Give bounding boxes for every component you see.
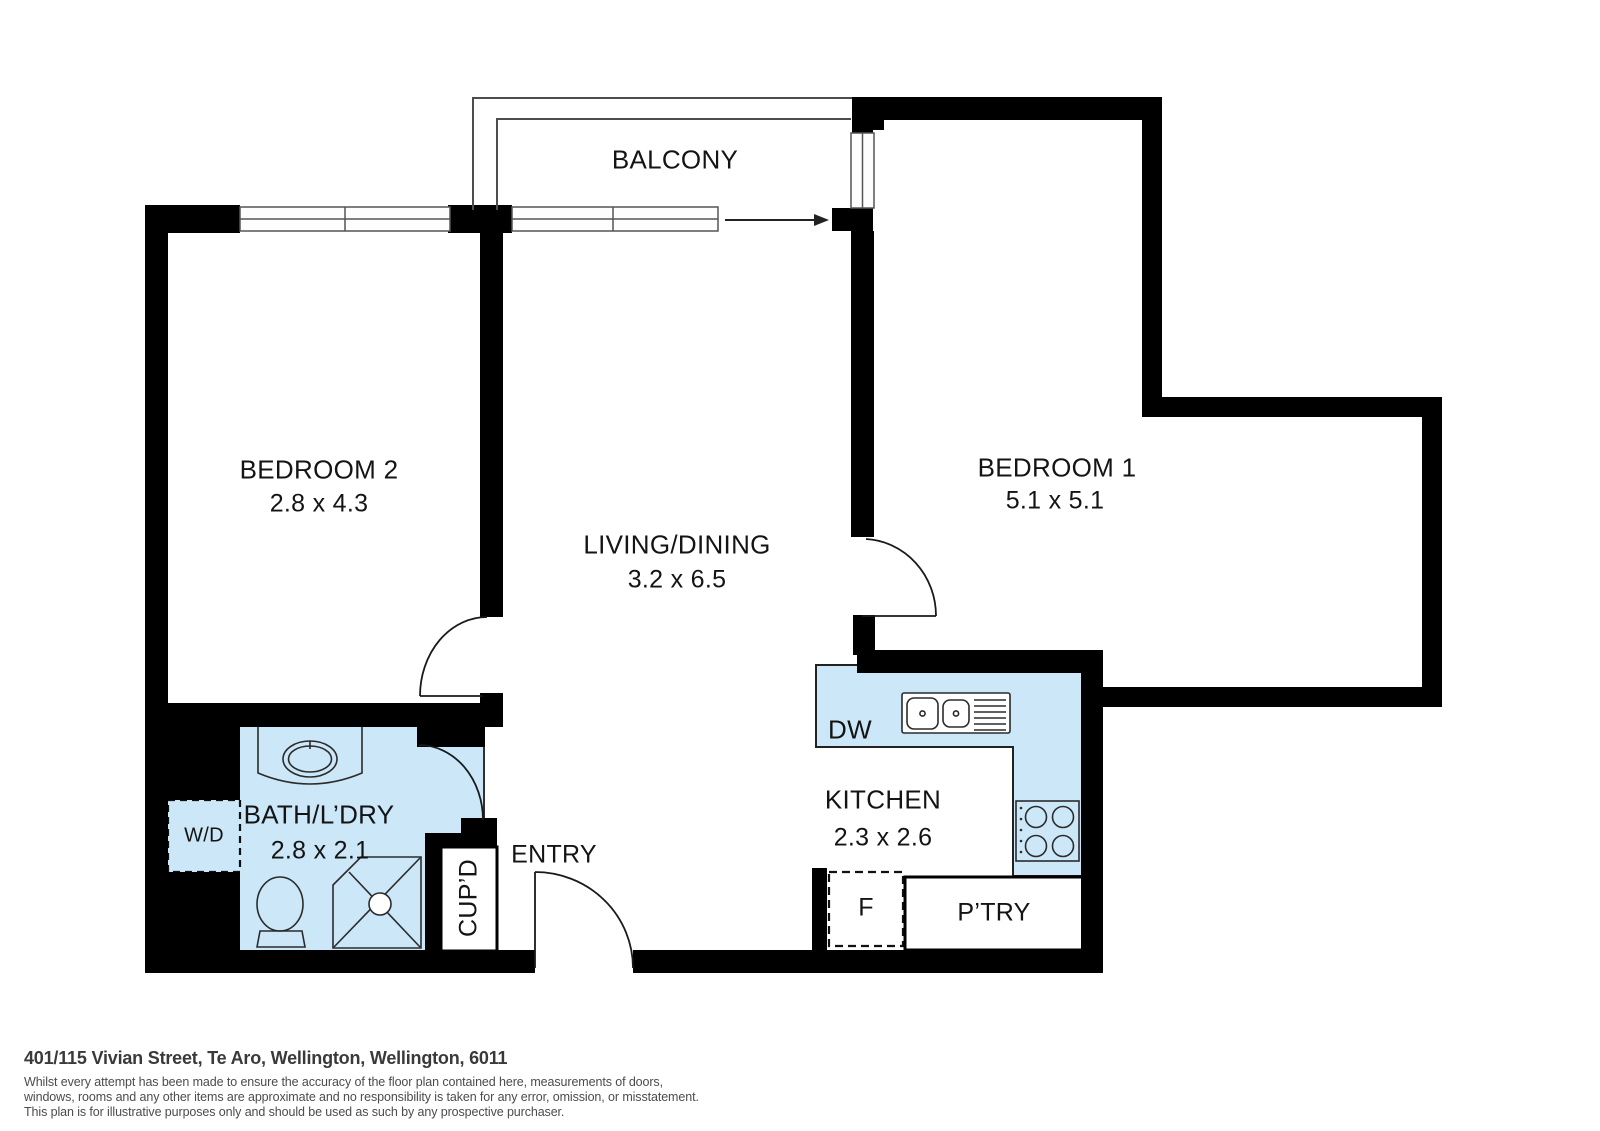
disclaimer-line-2: windows, rooms and any other items are a…	[24, 1090, 699, 1105]
disclaimer-line-1: Whilst every attempt has been made to en…	[24, 1075, 699, 1090]
property-address: 401/115 Vivian Street, Te Aro, Wellingto…	[24, 1048, 699, 1069]
living-window	[512, 207, 718, 231]
living-dining-label: LIVING/DINING	[583, 530, 770, 561]
bath-laundry-label: BATH/L’DRY	[244, 800, 395, 831]
kitchen-label: KITCHEN	[825, 785, 941, 816]
balcony-label: BALCONY	[612, 145, 738, 176]
disclaimer-line-3: This plan is for illustrative purposes o…	[24, 1105, 699, 1120]
bedroom2-door	[420, 617, 487, 696]
bedroom1-door	[862, 539, 936, 616]
dishwasher-label: DW	[828, 715, 872, 746]
sink-icon	[902, 693, 1010, 733]
living-dining-dims: 3.2 x 6.5	[628, 566, 727, 595]
cupboard-label: CUP’D	[455, 859, 484, 937]
bedroom1-dims: 5.1 x 5.1	[1006, 487, 1105, 516]
floorplan-drawing	[0, 0, 1600, 1131]
kitchen-dims: 2.3 x 2.6	[834, 824, 933, 853]
footer: 401/115 Vivian Street, Te Aro, Wellingto…	[24, 1048, 699, 1120]
bedroom2-dims: 2.8 x 4.3	[270, 490, 369, 519]
disclaimer: Whilst every attempt has been made to en…	[24, 1075, 699, 1120]
pantry-label: P’TRY	[957, 899, 1030, 928]
floorplan-canvas: BALCONY BEDROOM 2 2.8 x 4.3 BEDROOM 1 5.…	[0, 0, 1600, 1131]
bath-laundry-dims: 2.8 x 2.1	[271, 837, 370, 866]
bedroom1-label: BEDROOM 1	[978, 453, 1137, 484]
door-direction-arrow	[725, 214, 829, 226]
entry-door	[535, 872, 633, 968]
windows	[240, 133, 874, 231]
bedroom2-window	[240, 207, 450, 231]
entry-label: ENTRY	[511, 841, 597, 870]
bedroom1-window	[851, 133, 874, 208]
fridge-label: F	[858, 894, 874, 923]
bedroom2-label: BEDROOM 2	[240, 455, 399, 486]
washer-dryer-label: W/D	[184, 825, 224, 848]
